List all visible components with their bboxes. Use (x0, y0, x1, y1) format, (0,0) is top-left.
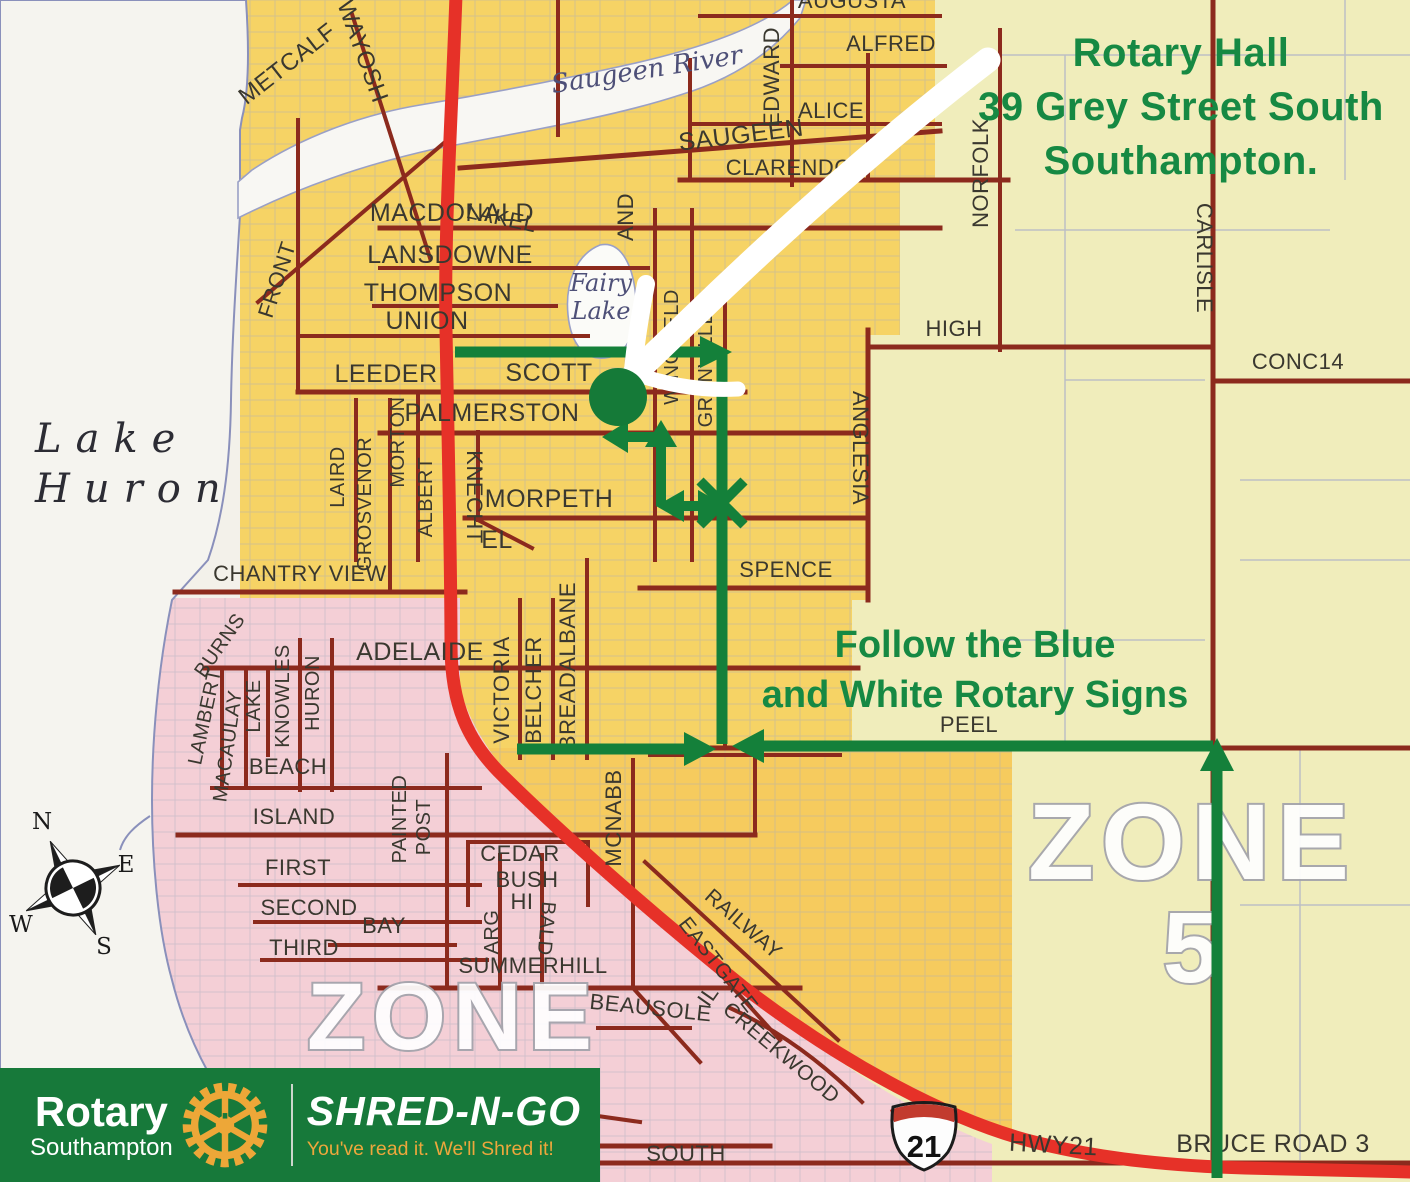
hall-line3: Southampton. (950, 134, 1410, 188)
shredngo-tagline: You've read it. We'll Shred it! (307, 1138, 581, 1161)
street-label: HI (511, 889, 534, 914)
rotary-club-label: Southampton (30, 1135, 173, 1161)
street-label: MORPETH (485, 485, 614, 513)
street-label: BEACH (249, 754, 327, 779)
compass-s: S (96, 934, 112, 960)
street-label: ADELAIDE (356, 638, 484, 666)
street-label: UNION (385, 307, 468, 335)
street-label: THIRD (269, 935, 339, 960)
street-label: BREADALBANE (555, 582, 580, 750)
street-label: ISLAND (253, 804, 335, 829)
street-label: ALICE (798, 98, 864, 123)
street-label: AND (613, 193, 638, 241)
rotary-wordmark: Rotary Southampton (30, 1089, 173, 1161)
street-label: PALMERSTON (405, 399, 580, 427)
street-label: KNECHT (462, 450, 487, 543)
street-label: HWY21 (1008, 1129, 1098, 1162)
shield-number: 21 (907, 1129, 941, 1164)
street-label: CEDAR (480, 841, 560, 866)
water-label: Fairy (569, 269, 632, 297)
street-label: ALBERT (415, 457, 437, 537)
street-label: BAY (362, 913, 406, 938)
street-label: GROSVENOR (354, 437, 376, 572)
street-label: MORTON (387, 396, 409, 487)
street-label: BALD (533, 901, 560, 957)
signs-line2: and White Rotary Signs (752, 670, 1198, 720)
street-label: CONC14 (1252, 349, 1344, 374)
lake-huron-label-line2: Huron (34, 466, 235, 512)
street-label: KNOWLES (272, 644, 294, 748)
street-label: SOUTH (646, 1141, 726, 1166)
street-label: BRUCE ROAD 3 (1176, 1130, 1370, 1158)
hall-annotation: Rotary Hall 39 Grey Street South Southam… (950, 26, 1410, 188)
compass-e: E (118, 852, 135, 878)
compass-w: W (9, 912, 33, 938)
street-label: HIGH (926, 316, 983, 341)
rotary-org-label: Rotary (35, 1089, 168, 1135)
signs-annotation: Follow the Blue and White Rotary Signs (752, 620, 1198, 720)
street-label: LEEDER (334, 360, 437, 388)
rotary-shredngo-banner: Rotary Southampton SHRED-N-GO You've rea… (0, 1068, 600, 1182)
rotary-hall-marker (589, 368, 647, 426)
street-label: LAKE (243, 679, 265, 732)
map-screenshot: METCALFOWAYOSHSAUGEENMACDONALDLANSDOWNET… (0, 0, 1410, 1182)
street-label: EDWARD (759, 27, 784, 127)
banner-divider (291, 1084, 293, 1166)
compass-n: N (32, 809, 52, 835)
street-label: HURON (302, 655, 324, 731)
street-label: ANGLESIA (848, 391, 873, 505)
street-label: VICTORIA (489, 636, 514, 744)
street-label: POST (413, 799, 435, 855)
street-label: AUGUSTA (798, 0, 906, 13)
street-label: ARG (481, 910, 503, 955)
street-label: LANSDOWNE (367, 241, 533, 269)
hall-line1: Rotary Hall (950, 26, 1410, 80)
street-label: SPENCE (739, 557, 832, 582)
shredngo-brand: SHRED-N-GO (307, 1089, 581, 1133)
street-label: SECOND (260, 895, 357, 920)
street-label: SCOTT (505, 359, 592, 387)
street-label: CARLISLE (1192, 203, 1217, 313)
zone-label: ZONE (307, 964, 599, 1070)
signs-line1: Follow the Blue (752, 620, 1198, 670)
lake-huron-label-line1: Lake (34, 416, 189, 462)
zone-label: ZONE (1028, 781, 1356, 902)
street-label: MCNABB (601, 769, 626, 866)
street-label: THOMPSON (364, 279, 512, 307)
street-label: BELCHER (521, 636, 546, 743)
water-label: Lake (571, 297, 631, 325)
street-label: LAIRD (327, 446, 349, 507)
street-label: PAINTED (389, 775, 411, 864)
street-label: ALFRED (846, 31, 936, 56)
rotary-wheel-icon (179, 1079, 271, 1171)
street-label: FIRST (265, 855, 331, 880)
hall-line2: 39 Grey Street South (950, 80, 1410, 134)
